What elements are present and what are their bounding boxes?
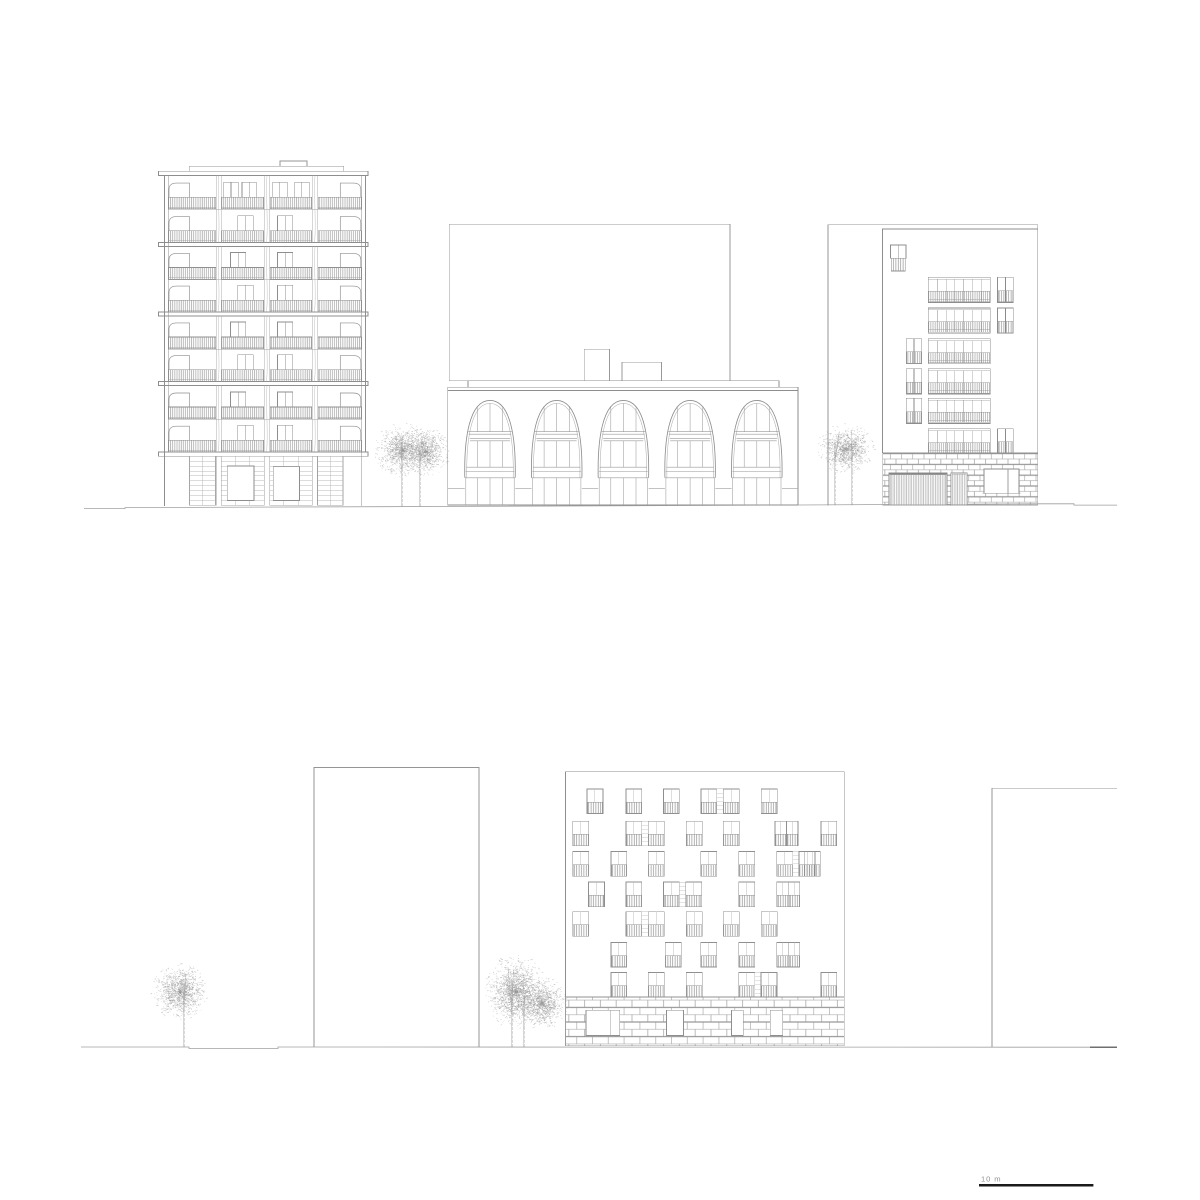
svg-text:10 m: 10 m: [981, 1175, 1001, 1184]
